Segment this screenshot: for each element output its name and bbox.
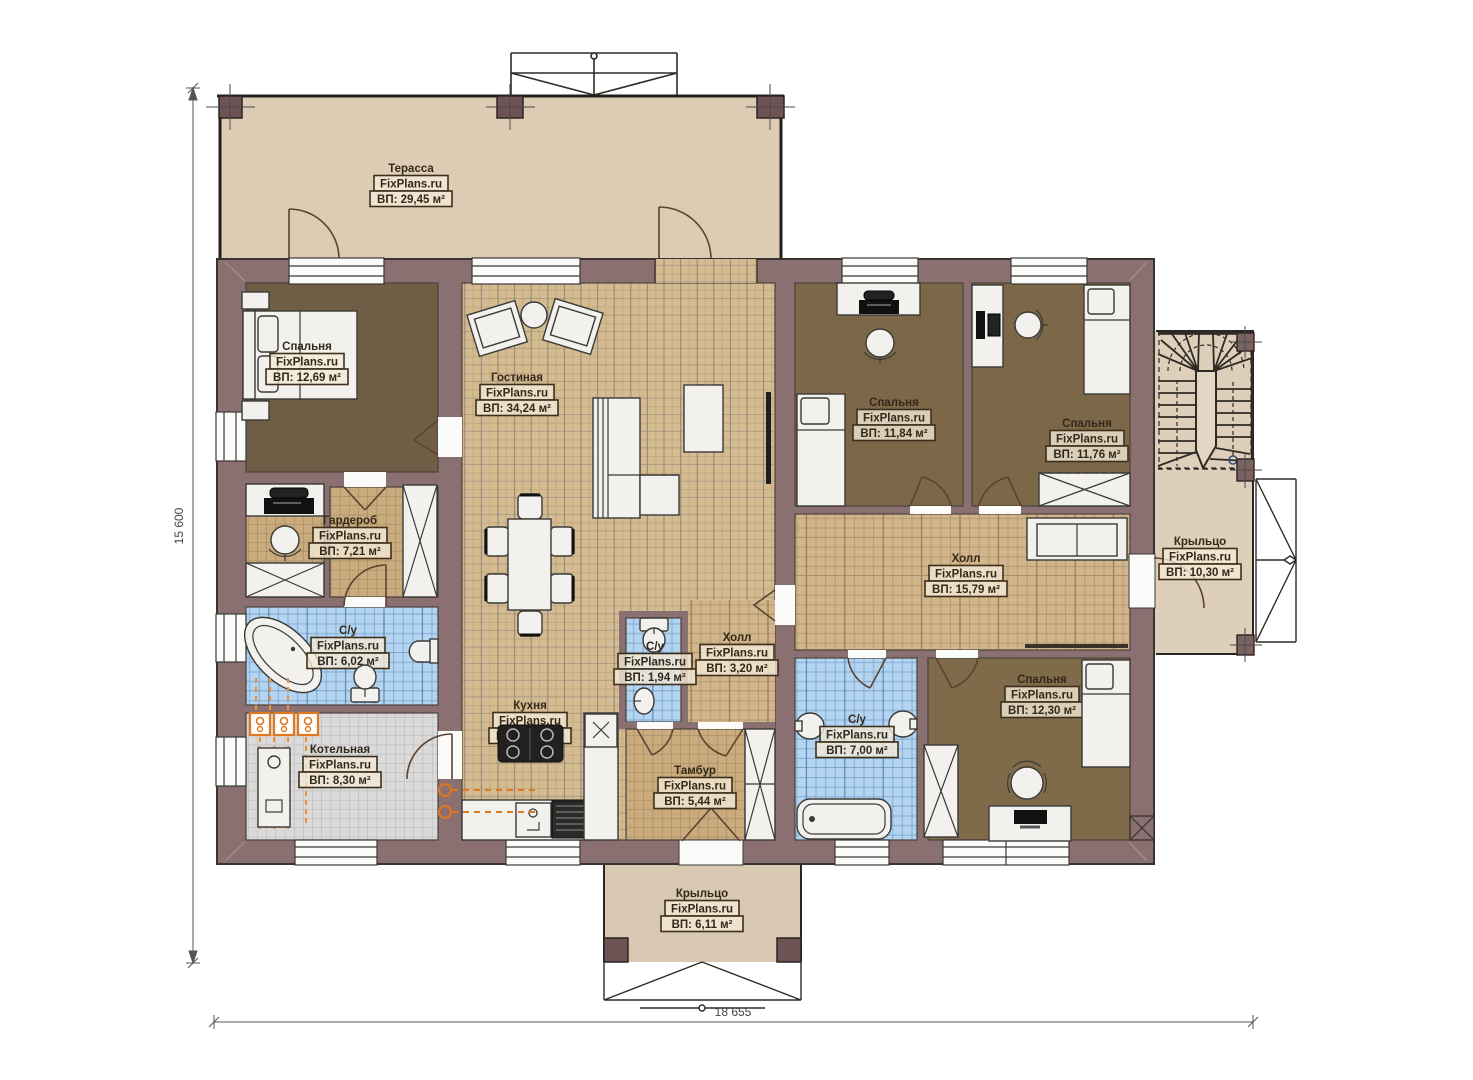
svg-text:ВП: 11,84 м²: ВП: 11,84 м²	[860, 428, 927, 440]
svg-text:FixPlans.ru: FixPlans.ru	[1011, 690, 1073, 702]
svg-text:FixPlans.ru: FixPlans.ru	[664, 781, 726, 793]
svg-text:FixPlans.ru: FixPlans.ru	[671, 904, 733, 916]
svg-text:Спальня: Спальня	[282, 341, 332, 353]
svg-text:ВП: 3,20 м²: ВП: 3,20 м²	[706, 663, 768, 675]
svg-text:FixPlans.ru: FixPlans.ru	[486, 388, 548, 400]
svg-text:Холл: Холл	[723, 632, 752, 644]
svg-text:С/у: С/у	[848, 714, 867, 726]
svg-text:Гостиная: Гостиная	[491, 372, 543, 384]
svg-text:С/у: С/у	[339, 625, 358, 637]
svg-text:FixPlans.ru: FixPlans.ru	[309, 760, 371, 772]
svg-text:FixPlans.ru: FixPlans.ru	[319, 531, 381, 543]
svg-text:Терасса: Терасса	[388, 163, 434, 175]
svg-text:ВП: 29,45 м²: ВП: 29,45 м²	[377, 194, 445, 206]
svg-text:С/у: С/у	[646, 641, 665, 653]
svg-text:FixPlans.ru: FixPlans.ru	[826, 730, 888, 742]
svg-text:ВП: 7,00 м²: ВП: 7,00 м²	[826, 745, 888, 757]
svg-text:Котельная: Котельная	[310, 744, 370, 756]
svg-text:18 655: 18 655	[715, 1005, 752, 1019]
svg-text:FixPlans.ru: FixPlans.ru	[380, 179, 442, 191]
svg-text:FixPlans.ru: FixPlans.ru	[863, 413, 925, 425]
svg-text:ВП: 12,69 м²: ВП: 12,69 м²	[273, 372, 341, 384]
svg-text:FixPlans.ru: FixPlans.ru	[276, 357, 338, 369]
svg-text:Спальня: Спальня	[869, 397, 919, 409]
svg-text:Гардероб: Гардероб	[323, 515, 377, 527]
svg-text:ВП: 5,44 м²: ВП: 5,44 м²	[664, 796, 726, 808]
svg-text:Тамбур: Тамбур	[674, 765, 716, 777]
svg-text:ВП: 10,30 м²: ВП: 10,30 м²	[1166, 567, 1234, 579]
svg-text:FixPlans.ru: FixPlans.ru	[624, 657, 686, 669]
svg-text:FixPlans.ru: FixPlans.ru	[935, 569, 997, 581]
svg-text:FixPlans.ru: FixPlans.ru	[706, 648, 768, 660]
svg-text:Крыльцо: Крыльцо	[676, 888, 728, 900]
svg-text:Крыльцо: Крыльцо	[1174, 536, 1226, 548]
svg-text:FixPlans.ru: FixPlans.ru	[1056, 434, 1118, 446]
svg-text:ВП: 6,11 м²: ВП: 6,11 м²	[672, 919, 733, 931]
svg-text:Кухня: Кухня	[513, 700, 547, 712]
svg-text:ВП: 12,30 м²: ВП: 12,30 м²	[1008, 705, 1076, 717]
svg-text:FixPlans.ru: FixPlans.ru	[317, 641, 379, 653]
svg-text:ВП: 34,24 м²: ВП: 34,24 м²	[483, 403, 551, 415]
svg-text:Спальня: Спальня	[1062, 418, 1112, 430]
svg-text:ВП: 1,94 м²: ВП: 1,94 м²	[624, 672, 686, 684]
svg-text:Холл: Холл	[952, 553, 981, 565]
svg-text:ВП: 11,76 м²: ВП: 11,76 м²	[1053, 449, 1120, 461]
svg-text:15 600: 15 600	[172, 507, 186, 544]
svg-text:ВП: 15,79 м²: ВП: 15,79 м²	[932, 584, 1000, 596]
svg-text:Спальня: Спальня	[1017, 674, 1067, 686]
svg-text:ВП: 8,30 м²: ВП: 8,30 м²	[309, 775, 371, 787]
svg-text:ВП: 7,21 м²: ВП: 7,21 м²	[319, 546, 381, 558]
svg-text:FixPlans.ru: FixPlans.ru	[1169, 552, 1231, 564]
